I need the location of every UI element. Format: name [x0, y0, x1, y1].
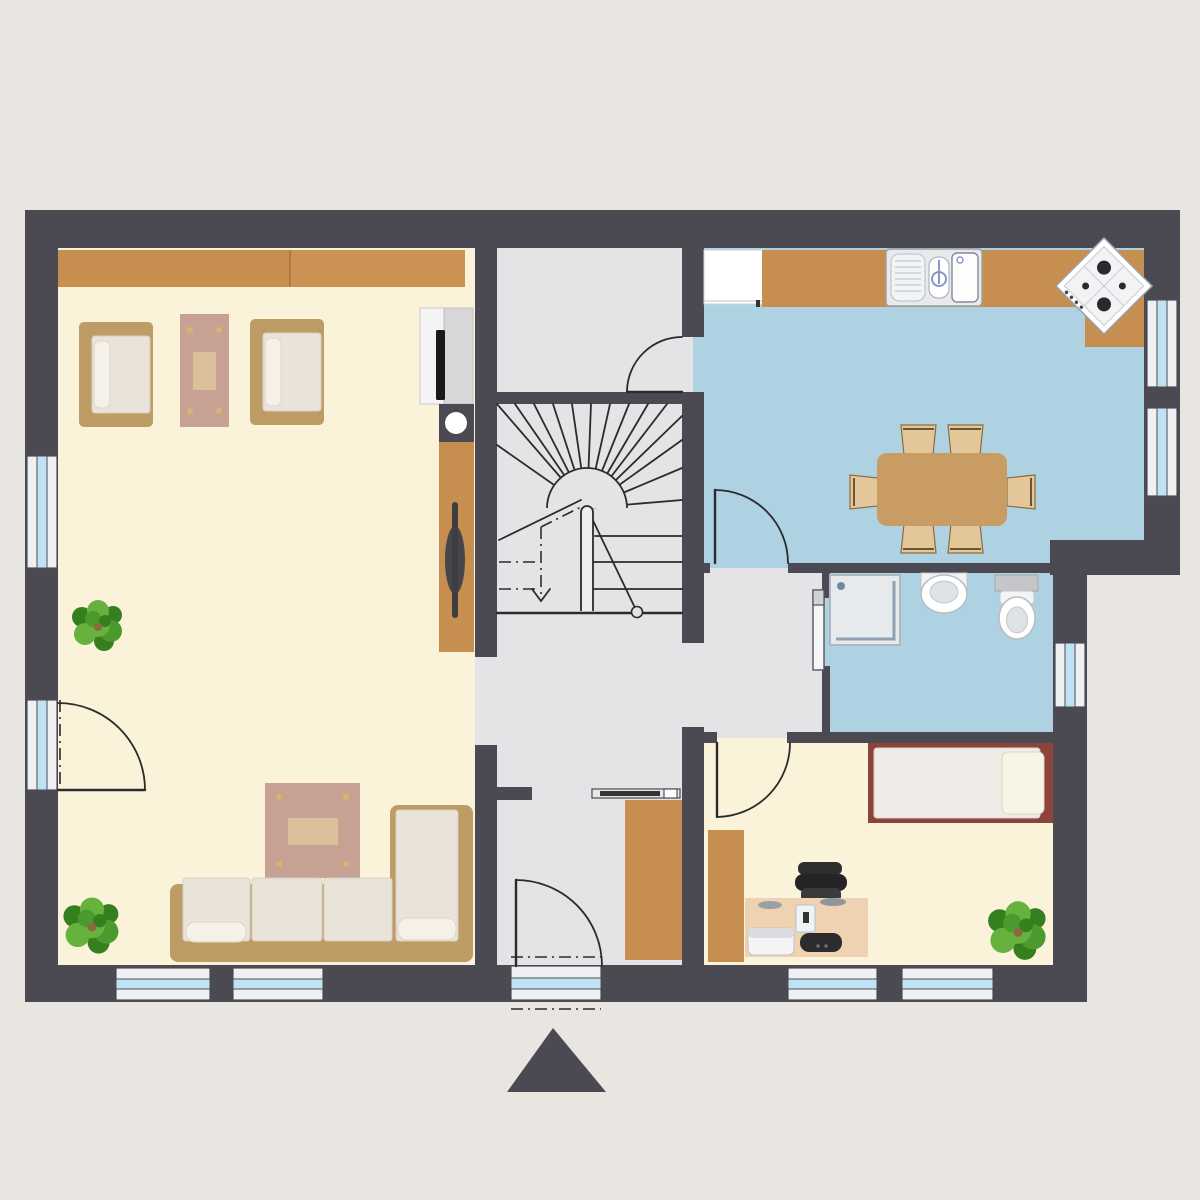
floor-plan-canvas: [0, 0, 1200, 1200]
window-living-1: [116, 968, 210, 1000]
desk-item: [758, 901, 782, 909]
shower-head: [837, 582, 845, 590]
wall-kitchen-upper: [682, 248, 704, 337]
tv-cabinet: [420, 308, 473, 404]
stove-flue: [445, 412, 467, 434]
hallway-right-floor: [704, 573, 822, 732]
bidet: [921, 573, 967, 613]
stove-block: [439, 404, 474, 442]
armchair-1: [79, 322, 153, 427]
window-bathroom: [1055, 643, 1085, 707]
sofa-pillow-2: [398, 918, 456, 940]
window-kitchen-2: [1147, 408, 1177, 496]
hallway-gap-floor: [682, 643, 704, 727]
keyboard: [800, 933, 842, 952]
hall-wardrobe: [625, 800, 682, 960]
wall-bedroom-top-a: [704, 732, 717, 743]
wall-stub-hall: [497, 787, 532, 800]
sliding-door-bathroom: [813, 590, 824, 670]
floor-plan: [0, 0, 1200, 1200]
side-table: [180, 314, 229, 427]
wall-bath-left-b: [822, 666, 830, 732]
toilet: [995, 575, 1038, 639]
wall-kitchen-bottom-a: [704, 563, 710, 573]
printer: [748, 928, 794, 955]
wall-kitchen-lower: [682, 392, 704, 643]
wall-living-hall-lower: [475, 745, 497, 965]
sofa-seat-2: [252, 878, 322, 941]
wall-living-hall-upper: [475, 248, 497, 657]
tall-cabinet: [439, 442, 474, 652]
window-living-2: [233, 968, 323, 1000]
vestibule-floor: [497, 248, 682, 392]
desk-item: [820, 898, 846, 906]
stair-line-end-marker: [632, 607, 643, 618]
bed-pillow: [1002, 752, 1044, 814]
wall-left: [25, 210, 58, 1002]
wall-right-upper: [1144, 210, 1180, 575]
wall-bedroom-top-b: [787, 732, 1053, 743]
coffee-table: [265, 783, 360, 878]
armchair-2: [250, 319, 324, 425]
wall-top: [25, 210, 1180, 248]
wall-vestibule-stair: [497, 392, 682, 404]
dining-table: [877, 453, 1007, 526]
stair-newel-rail: [581, 506, 593, 611]
wall-bedroom-left: [682, 727, 704, 965]
hallway-passage-floor: [475, 657, 497, 745]
window-bedroom-1: [788, 968, 877, 1000]
wall-kitchen-bottom-b: [788, 563, 1053, 573]
tv-screen: [436, 330, 445, 400]
fridge: [704, 250, 763, 307]
window-kitchen-1: [1147, 300, 1177, 387]
bedroom-wardrobe: [708, 830, 744, 962]
sofa-pillow-1: [186, 922, 246, 942]
wall-right-lower: [1053, 540, 1087, 1002]
shower: [830, 575, 900, 645]
window-living-left: [27, 456, 57, 568]
office-chair: [795, 862, 847, 902]
coat-rack: [592, 789, 680, 798]
kitchen-floor-lower: [704, 540, 1050, 563]
sofa-seat-3: [324, 878, 392, 941]
kitchen-sink: [886, 249, 982, 306]
monitor: [796, 905, 815, 932]
window-bedroom-2: [902, 968, 993, 1000]
bed: [868, 743, 1053, 823]
